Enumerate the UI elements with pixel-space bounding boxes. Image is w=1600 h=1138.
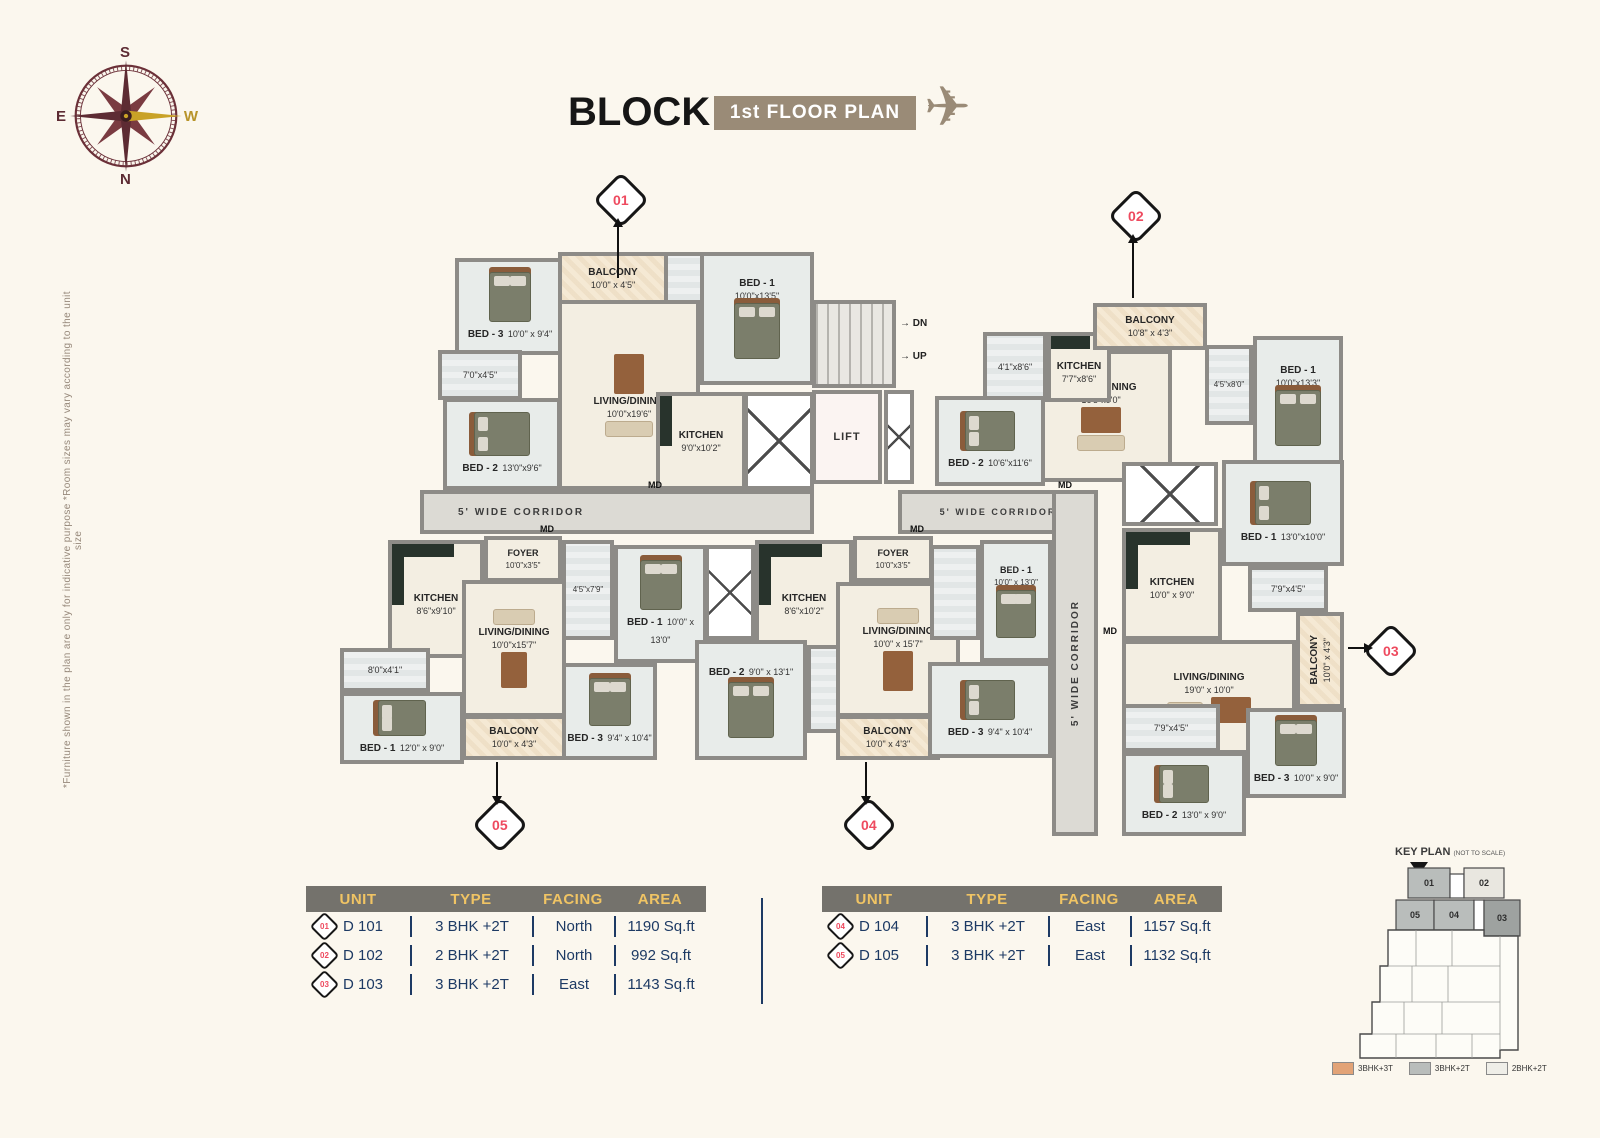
marker-arrowhead <box>861 796 871 805</box>
marker-arrow <box>496 762 498 800</box>
sofa-icon <box>1077 435 1125 451</box>
bed-icon <box>965 680 1015 720</box>
room-balcony-u04: BALCONY 10'0" x 4'3" <box>836 715 940 760</box>
room-toilet-u03a: 7'9"x4'5" <box>1248 566 1328 612</box>
unit-badge: 01 <box>310 912 340 942</box>
kitchen-counter <box>660 396 672 446</box>
room-bath-u04b <box>930 545 980 640</box>
unit-marker-04: 04 <box>841 797 898 854</box>
room-foyer-u04: FOYER 10'0"x3'5" <box>853 536 933 582</box>
room-bath-u01-top <box>664 252 704 304</box>
marker-arrowhead <box>1128 234 1138 243</box>
room-bed1-u04: BED - 1 10'0" x 13'0" <box>980 540 1052 662</box>
room-kitchen-u01: KITCHEN 9'0"x10'2" <box>656 392 746 490</box>
legend-item: 2BHK+2T <box>1486 1062 1547 1075</box>
bed-icon <box>1159 765 1209 803</box>
dining-table-icon <box>501 652 527 688</box>
duct-shaft <box>705 545 755 640</box>
bed-icon <box>489 272 531 322</box>
dining-table-icon <box>883 651 913 691</box>
bed-icon <box>1275 720 1317 766</box>
stairs-down-label: → DN <box>900 318 927 329</box>
room-toilet-u05a: 8'0"x4'1" <box>340 648 430 692</box>
dining-table-icon <box>614 354 644 394</box>
col-unit: UNIT <box>306 891 410 908</box>
keyplan-unit-04: 04 <box>1449 910 1459 920</box>
dining-table-icon <box>1081 407 1121 433</box>
kitchen-counter <box>1051 336 1090 349</box>
room-label: BED - 2 10'6"x11'6" <box>948 453 1032 471</box>
room-toilet-u03b: 7'9"x4'5" <box>1122 704 1220 752</box>
table-row: 05D 105 3 BHK +2T East 1132 Sq.ft <box>822 941 1222 970</box>
col-area: AREA <box>614 891 706 908</box>
col-area: AREA <box>1130 891 1222 908</box>
unit-table-right: UNIT TYPE FACING AREA 04D 104 3 BHK +2T … <box>822 886 1222 970</box>
room-bed1-u02: BED - 1 10'0"x13'3" <box>1253 336 1343 474</box>
marker-arrow <box>1132 242 1134 298</box>
room-label: BED - 3 9'4" x 10'4" <box>948 722 1032 740</box>
kitchen-counter <box>392 544 404 605</box>
duct-shaft <box>1122 462 1218 526</box>
room-bed2-u02: BED - 2 10'6"x11'6" <box>935 396 1045 486</box>
main-door-label: MD <box>1103 626 1117 636</box>
kitchen-counter <box>1126 532 1190 545</box>
unit-table-left: UNIT TYPE FACING AREA 01D 101 3 BHK +2T … <box>306 886 706 999</box>
keyplan-legend: 3BHK+3T 3BHK+2T 2BHK+2T <box>1332 1062 1547 1075</box>
room-toilet-u02b: 4'5"x8'0" <box>1205 345 1253 425</box>
room-label: BED - 2 9'0" x 13'1" <box>709 662 793 680</box>
corridor-label: 5' WIDE CORRIDOR <box>940 507 1057 517</box>
marker-arrow <box>617 226 619 278</box>
room-bed1b-u05: BED - 1 10'0" x 13'0" <box>614 545 707 663</box>
unit-badge: 05 <box>826 941 856 971</box>
room-label: BED - 1 12'0" x 9'0" <box>360 738 444 756</box>
sofa-icon <box>877 608 919 624</box>
bed-icon <box>474 412 530 456</box>
bed-icon <box>996 590 1036 638</box>
table-header: UNIT TYPE FACING AREA <box>306 886 706 912</box>
keyplan-graphic: 01 02 05 04 03 <box>1352 862 1552 1062</box>
bed-icon <box>640 560 682 610</box>
room-bed1-u03: BED - 1 13'0"x10'0" <box>1222 460 1344 566</box>
room-bed1-u01: BED - 1 10'0"x13'5" <box>700 252 814 385</box>
main-door-label: MD <box>540 524 554 534</box>
col-facing: FACING <box>532 891 614 908</box>
corridor-label: 5' WIDE CORRIDOR <box>1070 600 1081 726</box>
room-bed1-u05: BED - 1 12'0" x 9'0" <box>340 692 464 764</box>
corridor-label: 5' WIDE CORRIDOR <box>424 507 584 518</box>
table-row: 04D 104 3 BHK +2T East 1157 Sq.ft <box>822 912 1222 941</box>
table-header: UNIT TYPE FACING AREA <box>822 886 1222 912</box>
room-balcony-u01: BALCONY 10'0" x 4'5" <box>558 252 668 304</box>
room-bed2-u04: BED - 2 9'0" x 13'1" <box>695 640 807 760</box>
main-door-label: MD <box>910 524 924 534</box>
marker-arrowhead <box>492 796 502 805</box>
room-label: BED - 2 13'0" x 9'0" <box>1142 805 1226 823</box>
sofa-icon <box>493 609 535 625</box>
staircase <box>812 300 896 388</box>
room-label: BED - 1 10'0" x 13'0" <box>618 612 703 648</box>
room-label: BED - 1 13'0"x10'0" <box>1241 527 1325 545</box>
marker-arrow <box>865 762 867 800</box>
table-divider <box>761 898 763 1004</box>
duct-shaft <box>744 392 814 490</box>
unit-badge: 02 <box>310 941 340 971</box>
bed-icon <box>378 700 426 736</box>
room-bed3-u03: BED - 3 10'0" x 9'0" <box>1246 708 1346 798</box>
keyplan-unit-01: 01 <box>1424 878 1434 888</box>
bed-icon <box>734 303 780 359</box>
room-foyer-u05: FOYER 10'0"x3'5" <box>484 536 562 582</box>
legend-swatch-3bhk3t <box>1332 1062 1354 1075</box>
bed-icon <box>965 411 1015 451</box>
col-type: TYPE <box>410 891 532 908</box>
room-balcony-u03: BALCONY 10'0" x 4'3" <box>1296 612 1344 708</box>
room-bed3-u05: BED - 3 9'4" x 10'4" <box>562 663 657 760</box>
legend-swatch-2bhk2t <box>1486 1062 1508 1075</box>
room-bed2-u03: BED - 2 13'0" x 9'0" <box>1122 752 1246 836</box>
table-row: 03D 103 3 BHK +2T East 1143 Sq.ft <box>306 970 706 999</box>
keyplan-unit-03: 03 <box>1497 913 1507 923</box>
unit-badge: 03 <box>310 970 340 1000</box>
lift: LIFT <box>812 390 882 484</box>
bed-icon <box>1255 481 1311 525</box>
unit-badge: 04 <box>826 912 856 942</box>
stair-labels: → DN → UP <box>900 318 927 362</box>
marker-arrowhead <box>1364 643 1373 653</box>
room-toilet-u02a: 4'1"x8'6" <box>983 332 1047 402</box>
room-label: BED - 3 10'0" x 9'4" <box>468 324 552 342</box>
table-row: 01D 101 3 BHK +2T North 1190 Sq.ft <box>306 912 706 941</box>
room-kitchen-u03: KITCHEN 10'0" x 9'0" <box>1122 528 1222 640</box>
legend-item: 3BHK+2T <box>1409 1062 1470 1075</box>
marker-arrowhead <box>613 218 623 227</box>
room-label: BED - 3 10'0" x 9'0" <box>1254 768 1338 786</box>
room-balcony-u05: BALCONY 10'0" x 4'3" <box>462 715 566 760</box>
kitchen-counter <box>759 544 771 605</box>
table-row: 02D 102 2 BHK +2T North 992 Sq.ft <box>306 941 706 970</box>
bed-icon <box>728 682 774 738</box>
col-type: TYPE <box>926 891 1048 908</box>
room-bed3-u01: BED - 3 10'0" x 9'4" <box>455 258 565 355</box>
room-toilet-u05b: 4'5"x7'9" <box>562 540 614 640</box>
room-balcony-u02: BALCONY 10'8" x 4'3" <box>1093 303 1207 350</box>
corridor-vertical: 5' WIDE CORRIDOR <box>1052 490 1098 836</box>
room-label: BED - 2 13'0"x9'6" <box>462 458 541 476</box>
unit-marker-05: 05 <box>472 797 529 854</box>
duct-shaft <box>884 390 914 484</box>
room-living-u05: LIVING/DINING 10'0"x15'7" <box>462 580 566 717</box>
col-facing: FACING <box>1048 891 1130 908</box>
keyplan-subtitle: (NOT TO SCALE) <box>1453 850 1505 857</box>
room-bed3-u04: BED - 3 9'4" x 10'4" <box>928 662 1052 758</box>
main-door-label: MD <box>648 480 662 490</box>
room-bed2-u01: BED - 2 13'0"x9'6" <box>443 398 561 490</box>
col-unit: UNIT <box>822 891 926 908</box>
keyplan-unit-05: 05 <box>1410 910 1420 920</box>
room-toilet-u01: 7'0"x4'5" <box>438 350 522 400</box>
main-door-label: MD <box>1058 480 1072 490</box>
bed-icon <box>589 678 631 726</box>
legend-swatch-3bhk2t <box>1409 1062 1431 1075</box>
stairs-up-label: → UP <box>900 351 927 362</box>
keyplan-title: KEY PLAN (NOT TO SCALE) <box>1395 846 1505 858</box>
bed-icon <box>1275 390 1321 446</box>
floor-plan-page: S N E W BLOCK D 1st FLOOR PLAN ✈ *Furnit… <box>0 0 1600 1138</box>
corridor-west: 5' WIDE CORRIDOR <box>420 490 814 534</box>
legend-item: 3BHK+3T <box>1332 1062 1393 1075</box>
sofa-icon <box>605 421 653 437</box>
room-label: BED - 3 9'4" x 10'4" <box>567 728 651 746</box>
keyplan-unit-02: 02 <box>1479 878 1489 888</box>
